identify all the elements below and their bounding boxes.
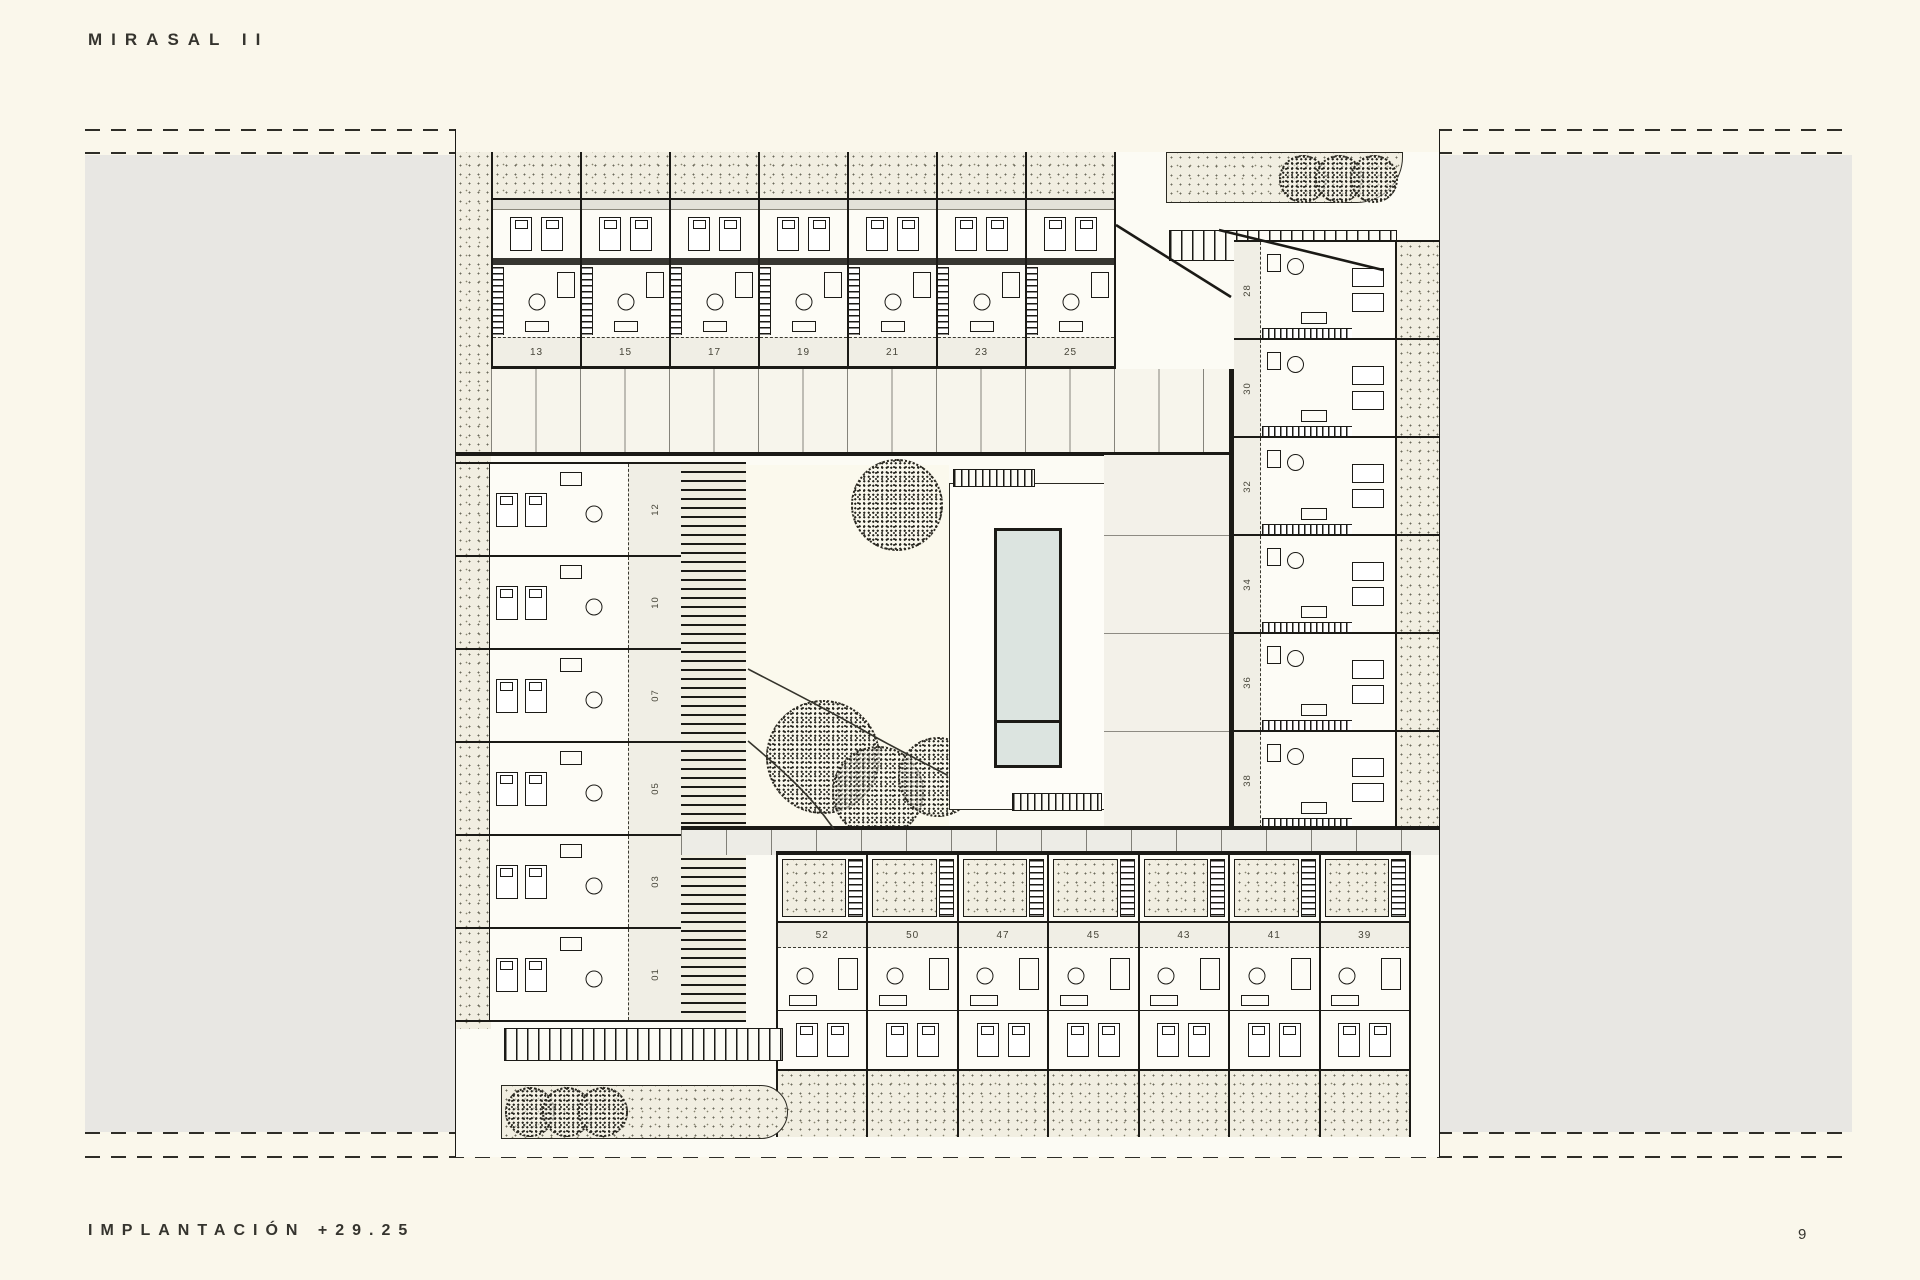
kitchen-counter	[929, 958, 949, 990]
unit-number: 50	[868, 923, 956, 948]
unit-garden	[938, 152, 1025, 200]
pool-kids-section	[997, 723, 1059, 765]
unit-number: 05	[649, 782, 660, 795]
court-paving	[872, 859, 936, 917]
kitchen-counter	[1110, 958, 1130, 990]
bed	[917, 1023, 939, 1057]
unit-terrace	[1230, 1069, 1318, 1137]
unit-bedroom	[493, 210, 580, 258]
sofa	[614, 321, 638, 332]
kitchen-counter	[1019, 958, 1039, 990]
court-paving	[963, 859, 1027, 917]
unit-number-strip: 01	[628, 929, 681, 1020]
court-paving	[782, 859, 846, 917]
round-table	[977, 967, 994, 984]
stairs	[1262, 426, 1352, 436]
pool	[994, 528, 1062, 768]
round-table	[1287, 258, 1304, 275]
tree-canopy	[578, 1087, 628, 1137]
unit-path	[849, 200, 936, 210]
unit-number: 03	[649, 875, 660, 888]
housing-unit: 13	[491, 152, 580, 366]
housing-unit: 10	[456, 557, 681, 650]
stairs	[1029, 859, 1044, 917]
unit-bedroom	[1140, 1010, 1228, 1069]
housing-unit: 03	[456, 836, 681, 929]
unit-number: 21	[849, 337, 936, 366]
unit-living-room	[1049, 948, 1137, 1010]
unit-garden	[1395, 242, 1439, 338]
unit-column-left: 12 10 07	[456, 462, 681, 1022]
access-road-right	[1104, 455, 1229, 830]
unit-bedroom	[1027, 210, 1114, 258]
unit-bedroom	[582, 210, 669, 258]
housing-unit: 23	[936, 152, 1025, 366]
bed	[496, 865, 518, 899]
unit-corridor-wall	[582, 258, 669, 265]
housing-unit: 30	[1234, 338, 1439, 436]
unit-path	[760, 200, 847, 210]
unit-path	[1027, 200, 1114, 210]
unit-number: 32	[1241, 480, 1252, 493]
bed	[510, 217, 532, 251]
unit-living-room	[959, 948, 1047, 1010]
unit-number: 36	[1241, 676, 1252, 689]
unit-corridor-wall	[493, 258, 580, 265]
stairs	[1262, 720, 1352, 730]
unit-living-room	[868, 948, 956, 1010]
unit-terrace	[1321, 1069, 1409, 1137]
round-table	[886, 967, 903, 984]
stairs	[849, 267, 860, 335]
unit-bedroom	[778, 1010, 866, 1069]
unit-garden	[1395, 340, 1439, 436]
unit-path	[493, 200, 580, 210]
bed	[1352, 464, 1384, 483]
round-table	[1287, 748, 1304, 765]
adjacent-lot-right	[1438, 155, 1852, 1132]
unit-number-strip: 28	[1234, 242, 1261, 338]
bed	[1279, 1023, 1301, 1057]
bed	[525, 679, 547, 713]
sofa	[525, 321, 549, 332]
pool-water	[997, 531, 1059, 720]
housing-unit: 17	[669, 152, 758, 366]
kitchen-counter	[560, 658, 582, 672]
round-table	[973, 294, 990, 311]
housing-unit: 19	[758, 152, 847, 366]
court-paving	[1053, 859, 1117, 917]
sofa	[1301, 312, 1327, 324]
sheet-title: MIRASAL II	[88, 30, 269, 50]
kitchen-counter	[735, 272, 753, 298]
unit-corridor-wall	[1027, 258, 1114, 265]
sofa	[1301, 508, 1327, 520]
housing-unit: 05	[456, 743, 681, 836]
stairs	[939, 859, 954, 917]
unit-living-room	[938, 265, 1025, 337]
unit-corridor-wall	[671, 258, 758, 265]
unit-living-room	[552, 557, 628, 648]
housing-unit: 01	[456, 929, 681, 1022]
round-table	[1287, 650, 1304, 667]
bed	[496, 586, 518, 620]
round-table	[884, 294, 901, 311]
housing-unit: 32	[1234, 436, 1439, 534]
unit-living-room	[552, 464, 628, 555]
tree-canopy	[1350, 155, 1398, 203]
kitchen-counter	[1267, 450, 1281, 468]
unit-garden	[1027, 152, 1114, 200]
unit-garden	[456, 929, 490, 1020]
unit-path	[938, 200, 1025, 210]
bed	[1352, 562, 1384, 581]
unit-number-strip: 12	[628, 464, 681, 555]
unit-number-strip: 34	[1234, 536, 1261, 632]
stairs	[1120, 859, 1135, 917]
unit-garden	[1395, 732, 1439, 828]
unit-garden	[1395, 536, 1439, 632]
stairs	[1262, 524, 1352, 534]
unit-terrace	[778, 1069, 866, 1137]
bed	[1157, 1023, 1179, 1057]
kitchen-counter	[1291, 958, 1311, 990]
bed	[525, 865, 547, 899]
kitchen-counter	[1002, 272, 1020, 298]
round-table	[1062, 294, 1079, 311]
round-table	[617, 294, 634, 311]
bed	[525, 493, 547, 527]
bed	[630, 217, 652, 251]
unit-living-room	[849, 265, 936, 337]
kitchen-counter	[824, 272, 842, 298]
sofa	[879, 995, 907, 1006]
bed	[1352, 391, 1384, 410]
housing-unit: 36	[1234, 632, 1439, 730]
unit-living-room	[552, 743, 628, 834]
unit-bedroom	[1341, 242, 1395, 338]
unit-entry-court	[1049, 855, 1137, 923]
drawing-caption: IMPLANTACIÓN +29.25	[88, 1222, 415, 1240]
kitchen-counter	[560, 937, 582, 951]
sofa	[1060, 995, 1088, 1006]
unit-number-strip: 07	[628, 650, 681, 741]
stairs	[671, 267, 682, 335]
deck-grate	[953, 469, 1035, 487]
unit-number: 28	[1241, 284, 1252, 297]
round-table	[1287, 454, 1304, 471]
unit-bedroom	[490, 557, 552, 648]
unit-entry-court	[1140, 855, 1228, 923]
unit-garden	[1395, 634, 1439, 730]
unit-bedroom	[490, 743, 552, 834]
bed	[496, 679, 518, 713]
unit-bedroom	[959, 1010, 1047, 1069]
bed	[796, 1023, 818, 1057]
bed	[1008, 1023, 1030, 1057]
stairs	[1027, 267, 1038, 335]
pool-deck	[949, 483, 1106, 810]
unit-number: 07	[649, 689, 660, 702]
unit-number-strip: 38	[1234, 732, 1261, 828]
sofa	[1301, 802, 1327, 814]
stairs	[848, 859, 863, 917]
unit-living-room	[1261, 438, 1341, 534]
round-table	[585, 878, 602, 895]
page-number: 9	[1798, 1226, 1806, 1243]
unit-bedroom	[1341, 634, 1395, 730]
round-table	[1287, 356, 1304, 373]
unit-terrace	[868, 1069, 956, 1137]
kitchen-counter	[560, 751, 582, 765]
unit-living-room	[552, 650, 628, 741]
unit-living-room	[552, 929, 628, 1020]
bed	[1352, 587, 1384, 606]
sofa	[1301, 704, 1327, 716]
sofa	[1301, 606, 1327, 618]
round-table	[1248, 967, 1265, 984]
unit-living-room	[1261, 732, 1341, 828]
kitchen-counter	[560, 565, 582, 579]
kitchen-counter	[646, 272, 664, 298]
bed	[955, 217, 977, 251]
round-table	[1339, 967, 1356, 984]
unit-garden	[1395, 438, 1439, 534]
unit-garden	[493, 152, 580, 200]
unit-living-room	[1261, 242, 1341, 338]
bed	[525, 772, 547, 806]
unit-number-strip: 05	[628, 743, 681, 834]
unit-number: 38	[1241, 774, 1252, 787]
unit-entry-court	[959, 855, 1047, 923]
sofa	[1301, 410, 1327, 422]
court-paving	[1234, 859, 1298, 917]
unit-bedroom	[1321, 1010, 1409, 1069]
unit-corridor-wall	[849, 258, 936, 265]
unit-garden	[456, 557, 490, 648]
unit-number: 01	[649, 968, 660, 981]
housing-unit: 28	[1234, 240, 1439, 338]
kitchen-counter	[1200, 958, 1220, 990]
unit-number: 13	[493, 337, 580, 366]
bed	[1352, 489, 1384, 508]
unit-living-room	[1261, 536, 1341, 632]
unit-terrace	[1049, 1069, 1137, 1137]
bed	[525, 586, 547, 620]
kitchen-counter	[557, 272, 575, 298]
unit-column-right: 28 30 32	[1234, 240, 1439, 830]
unit-row-bottom: 52 50 47	[776, 855, 1411, 1137]
housing-unit: 38	[1234, 730, 1439, 830]
bed	[541, 217, 563, 251]
unit-bedroom	[1230, 1010, 1318, 1069]
unit-living-room	[1027, 265, 1114, 337]
unit-bedroom	[849, 210, 936, 258]
unit-entry-court	[1321, 855, 1409, 923]
unit-bedroom	[1341, 340, 1395, 436]
round-table	[1067, 967, 1084, 984]
round-table	[706, 294, 723, 311]
housing-unit: 25	[1025, 152, 1116, 366]
round-table	[1287, 552, 1304, 569]
unit-number: 10	[649, 596, 660, 609]
bed	[986, 217, 1008, 251]
unit-bedroom	[938, 210, 1025, 258]
unit-bedroom	[1341, 732, 1395, 828]
round-table	[585, 506, 602, 523]
bed	[1248, 1023, 1270, 1057]
bed	[1188, 1023, 1210, 1057]
bed	[1352, 685, 1384, 704]
sofa	[1150, 995, 1178, 1006]
unit-number-strip: 32	[1234, 438, 1261, 534]
unit-living-room	[1230, 948, 1318, 1010]
bed	[827, 1023, 849, 1057]
kitchen-counter	[1267, 352, 1281, 370]
bed	[1369, 1023, 1391, 1057]
site-plan: 13 15 17	[455, 129, 1440, 1157]
kitchen-counter	[1267, 254, 1281, 272]
unit-row-top: 13 15 17	[491, 152, 1116, 366]
unit-number: 15	[582, 337, 669, 366]
unit-garden	[456, 464, 490, 555]
bed	[1075, 217, 1097, 251]
parking-bay-bottom-left	[504, 1028, 783, 1061]
unit-number: 43	[1140, 923, 1228, 948]
unit-living-room	[1261, 634, 1341, 730]
unit-garden	[760, 152, 847, 200]
bed	[599, 217, 621, 251]
bed	[1352, 783, 1384, 802]
unit-terrace	[959, 1069, 1047, 1137]
housing-unit: 41	[1228, 855, 1318, 1137]
bed	[977, 1023, 999, 1057]
unit-entry-court	[868, 855, 956, 923]
bed	[897, 217, 919, 251]
round-table	[585, 599, 602, 616]
stairs	[582, 267, 593, 335]
stairs	[938, 267, 949, 335]
unit-bedroom	[490, 650, 552, 741]
housing-unit: 15	[580, 152, 669, 366]
plan-margin-strip	[456, 129, 1439, 152]
round-table	[1158, 967, 1175, 984]
unit-bedroom	[490, 929, 552, 1020]
court-paving	[1325, 859, 1389, 917]
stairs	[1301, 859, 1316, 917]
bed	[719, 217, 741, 251]
sofa	[789, 995, 817, 1006]
housing-unit: 47	[957, 855, 1047, 1137]
court-paving	[1144, 859, 1208, 917]
housing-unit: 34	[1234, 534, 1439, 632]
bed	[866, 217, 888, 251]
bed	[886, 1023, 908, 1057]
unit-number: 12	[649, 503, 660, 516]
bed	[1044, 217, 1066, 251]
bed	[1338, 1023, 1360, 1057]
unit-number-strip: 03	[628, 836, 681, 927]
kitchen-counter	[1267, 548, 1281, 566]
unit-entry-court	[778, 855, 866, 923]
sofa	[703, 321, 727, 332]
sofa	[970, 321, 994, 332]
round-table	[585, 785, 602, 802]
stairs	[1210, 859, 1225, 917]
unit-living-room	[493, 265, 580, 337]
bed	[1352, 758, 1384, 777]
stairs	[1262, 328, 1352, 338]
kitchen-counter	[1091, 272, 1109, 298]
bed	[1352, 268, 1384, 287]
unit-number: 34	[1241, 578, 1252, 591]
unit-number: 47	[959, 923, 1047, 948]
unit-living-room	[671, 265, 758, 337]
kitchen-counter	[560, 844, 582, 858]
bed	[777, 217, 799, 251]
unit-terrace	[1140, 1069, 1228, 1137]
sofa	[1241, 995, 1269, 1006]
unit-bedroom	[868, 1010, 956, 1069]
unit-number: 25	[1027, 337, 1114, 366]
unit-number-strip: 30	[1234, 340, 1261, 436]
housing-unit: 39	[1319, 855, 1411, 1137]
unit-bedroom	[1049, 1010, 1137, 1069]
unit-bedroom	[1341, 536, 1395, 632]
kitchen-counter	[1267, 646, 1281, 664]
drawing-sheet: MIRASAL II 13	[0, 0, 1920, 1280]
bed	[1098, 1023, 1120, 1057]
unit-number-strip: 10	[628, 557, 681, 648]
sofa	[881, 321, 905, 332]
unit-path	[671, 200, 758, 210]
kitchen-counter	[1267, 744, 1281, 762]
housing-unit: 43	[1138, 855, 1228, 1137]
kitchen-counter	[913, 272, 931, 298]
unit-living-room	[760, 265, 847, 337]
unit-bedroom	[490, 464, 552, 555]
unit-number: 30	[1241, 382, 1252, 395]
round-table	[585, 971, 602, 988]
unit-living-room	[778, 948, 866, 1010]
unit-living-room	[552, 836, 628, 927]
kitchen-counter	[560, 472, 582, 486]
stairs	[1262, 622, 1352, 632]
adjacent-lot-left	[85, 155, 455, 1132]
unit-number-strip: 36	[1234, 634, 1261, 730]
stairs	[493, 267, 504, 335]
unit-living-room	[1140, 948, 1228, 1010]
unit-garden	[671, 152, 758, 200]
unit-garden	[456, 650, 490, 741]
bed	[496, 493, 518, 527]
unit-number: 45	[1049, 923, 1137, 948]
unit-garden	[456, 743, 490, 834]
housing-unit: 52	[776, 855, 866, 1137]
bed	[1352, 660, 1384, 679]
bed	[808, 217, 830, 251]
bed	[496, 772, 518, 806]
round-table	[585, 692, 602, 709]
unit-bedroom	[1341, 438, 1395, 534]
unit-living-room	[1261, 340, 1341, 436]
sofa	[1059, 321, 1083, 332]
housing-unit: 45	[1047, 855, 1137, 1137]
unit-living-room	[1321, 948, 1409, 1010]
unit-living-room	[582, 265, 669, 337]
unit-corridor-wall	[938, 258, 1025, 265]
access-road-top	[491, 369, 1234, 452]
